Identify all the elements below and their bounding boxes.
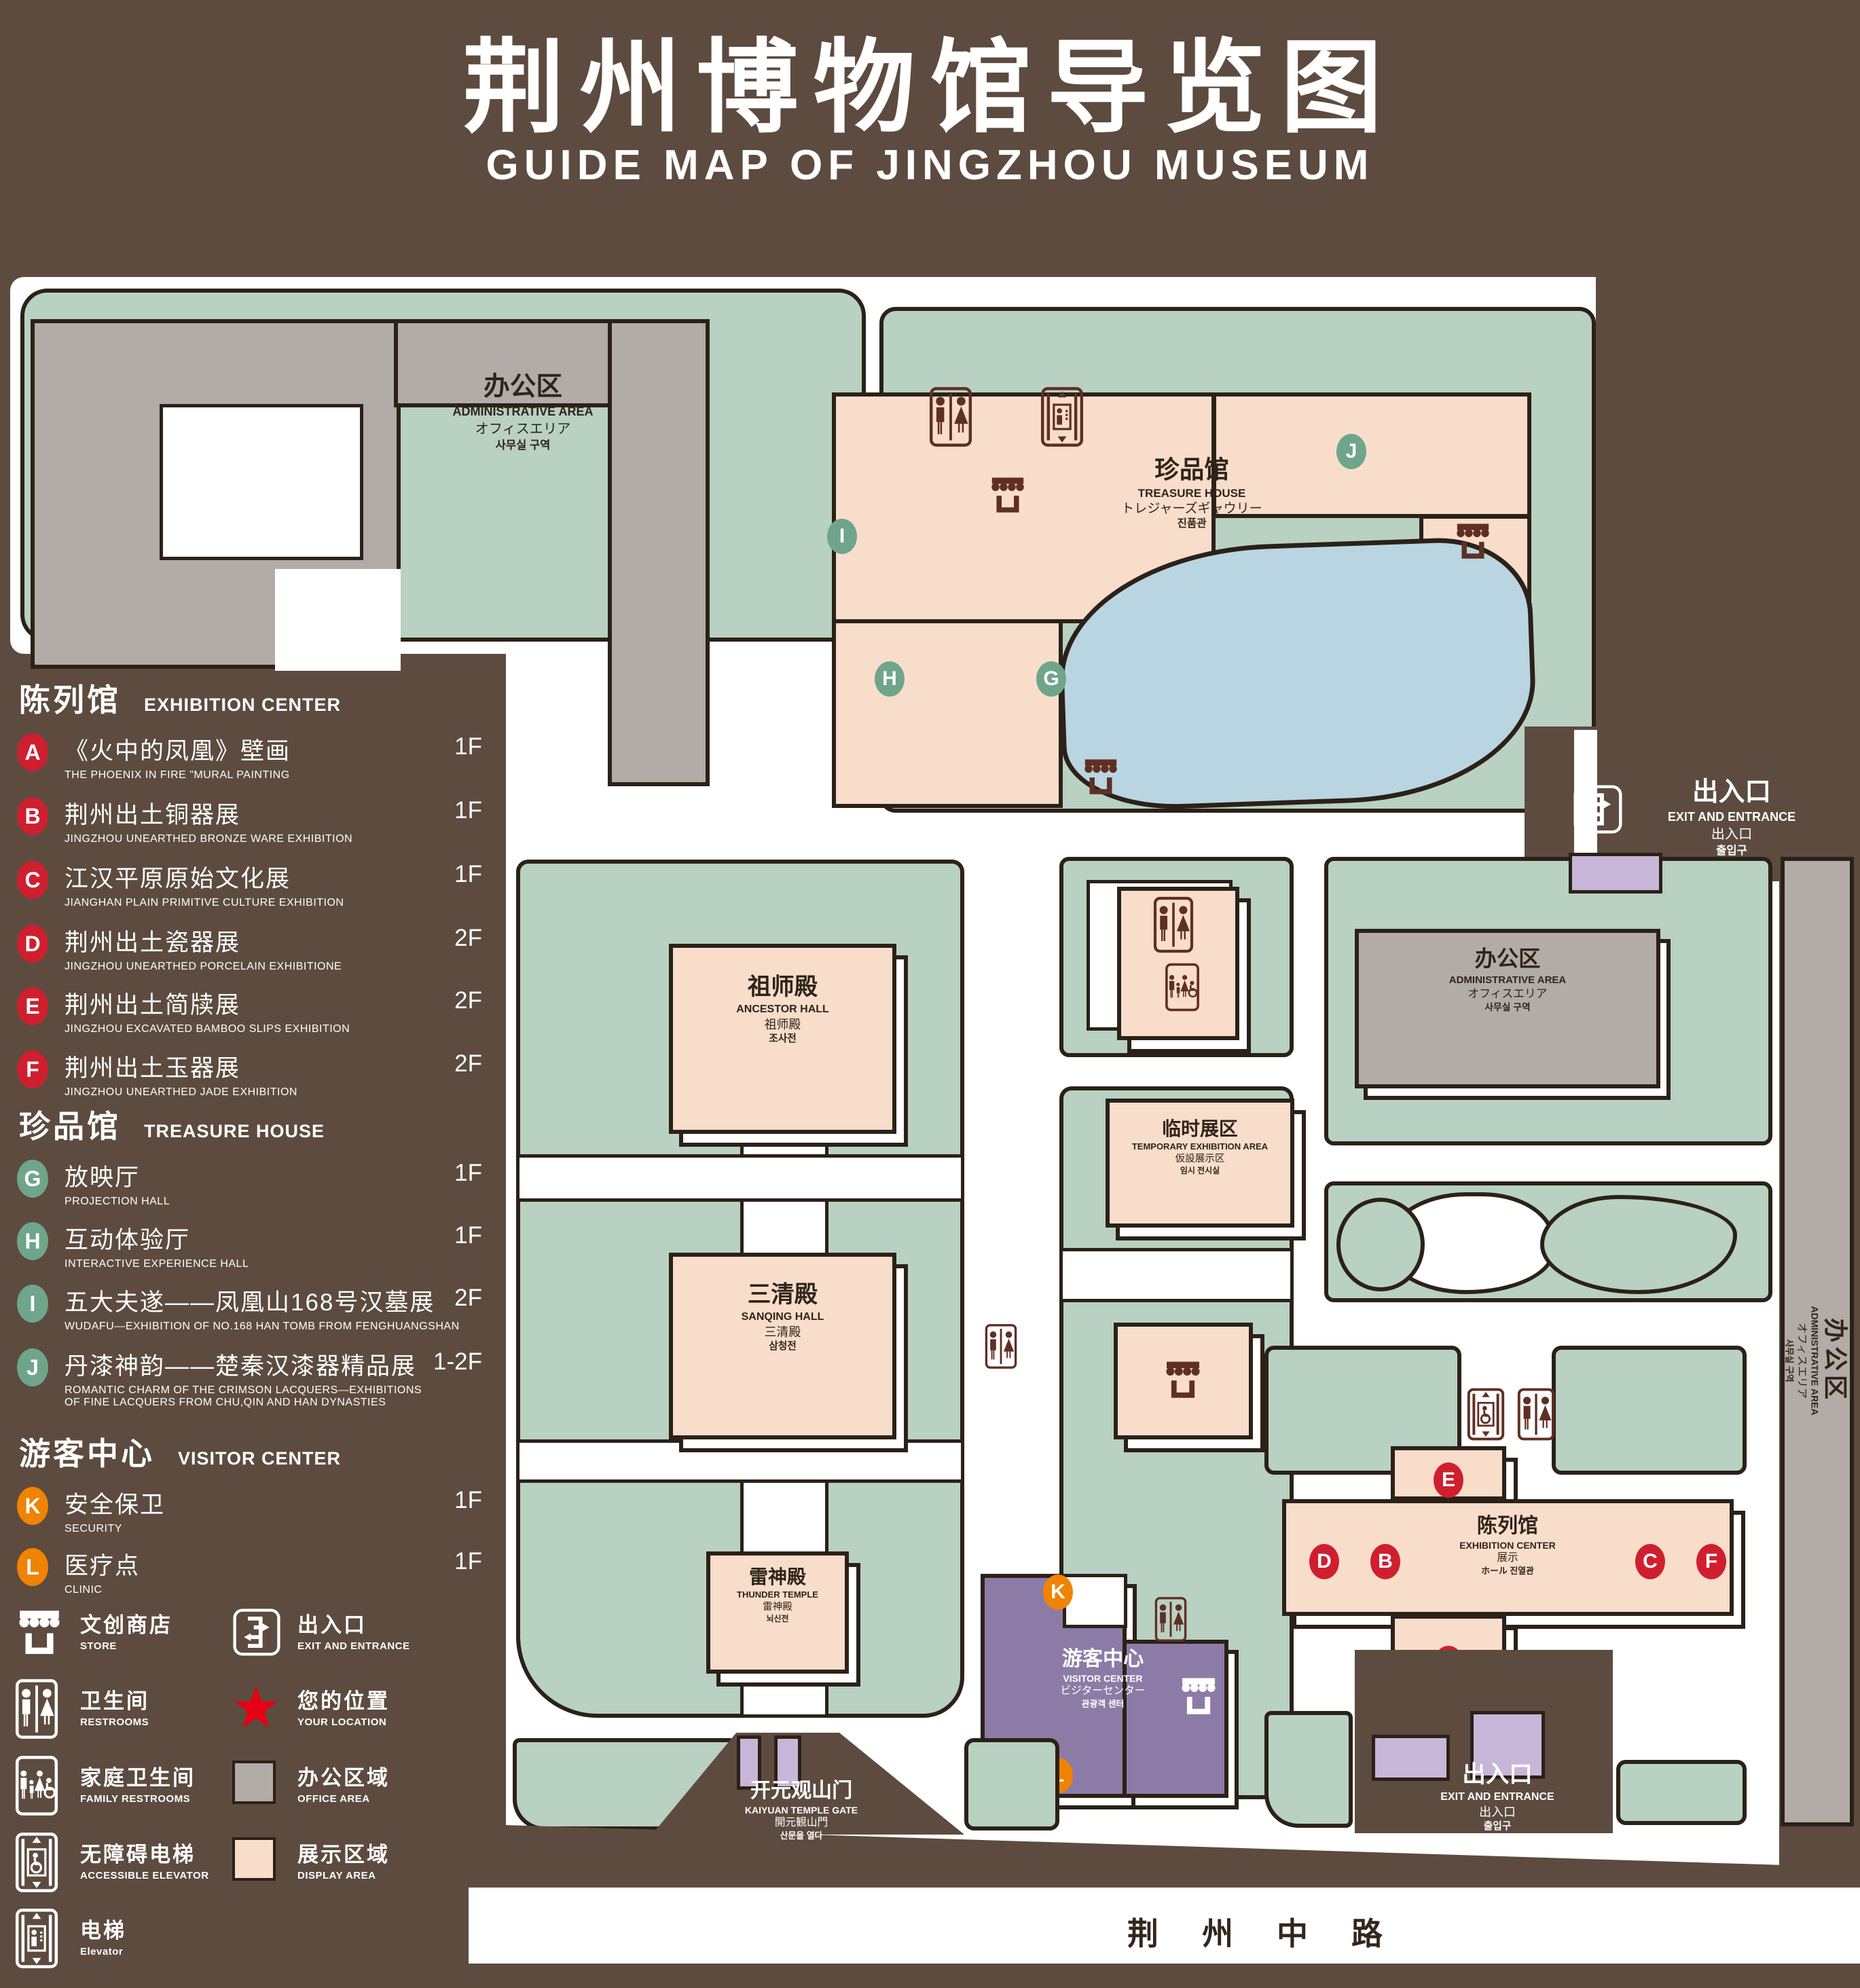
marker-J: J bbox=[1336, 434, 1366, 469]
path-central-h1 bbox=[516, 1154, 964, 1202]
store-icon bbox=[1453, 521, 1493, 561]
path-temporary bbox=[1059, 1248, 1294, 1302]
legend-item-D: D 荆州出土瓷器展 2F JINGZHOU UNEARTHED PORCELAI… bbox=[17, 923, 482, 973]
badge-J: J bbox=[17, 1348, 48, 1386]
store-icon bbox=[988, 475, 1027, 515]
badge-B: B bbox=[17, 797, 48, 835]
legend-item-F: F 荆州出土玉器展 2F JINGZHOU UNEARTHED JADE EXH… bbox=[17, 1049, 482, 1099]
thunder-temple-label: 雷神殿 THUNDER TEMPLE 雷神殿 뇌신전 bbox=[706, 1565, 849, 1625]
restroom-icon bbox=[15, 1678, 58, 1739]
legend-section-treasure-house: 珍品馆TREASURE HOUSE bbox=[19, 1102, 325, 1147]
marker-C: C bbox=[1635, 1544, 1665, 1579]
accessible-elevator-icon bbox=[1467, 1386, 1505, 1442]
visitor-center-notch bbox=[1063, 1574, 1127, 1628]
legend-item-K: K 安全保卫 1F SECURITY bbox=[17, 1486, 482, 1535]
legend-item-B: B 荆州出土铜器展 1F JINGZHOU UNEARTHED BRONZE W… bbox=[17, 796, 482, 845]
legend-symbol-store: 文创商店STORE bbox=[15, 1608, 219, 1652]
garden-island-west bbox=[1336, 1198, 1425, 1291]
store-icon bbox=[1178, 1676, 1219, 1716]
road-label: 荆州中路 bbox=[1127, 1909, 1426, 1954]
restroom-icon bbox=[985, 1323, 1017, 1370]
store-icon bbox=[15, 1608, 64, 1657]
elevator-icon bbox=[1040, 386, 1084, 448]
badge-F: F bbox=[17, 1050, 48, 1088]
family-restroom-icon bbox=[1165, 963, 1200, 1012]
legend-symbol-your-location: 您的位置YOUR LOCATION bbox=[232, 1684, 450, 1728]
path-central-h2 bbox=[516, 1439, 964, 1483]
legend-item-E: E 荆州出土简牍展 2F JINGZHOU EXCAVATED BAMBOO S… bbox=[17, 986, 482, 1035]
display-area-swatch bbox=[232, 1837, 276, 1881]
ancestor-hall-label: 祖师殿 ANCESTOR HALL 祖师殿 조사전 bbox=[669, 972, 896, 1046]
zone-gate-east-green bbox=[964, 1738, 1059, 1830]
store-icon bbox=[1163, 1359, 1203, 1400]
treasure-house-tower bbox=[832, 619, 1063, 808]
exit-icon bbox=[1573, 781, 1623, 838]
badge-C: C bbox=[17, 861, 48, 899]
marker-E: E bbox=[1434, 1462, 1463, 1498]
temporary-exhibition-label: 临时展区 TEMPORARY EXHIBITION AREA 仮設展示区 임시 … bbox=[1106, 1117, 1294, 1177]
restroom-icon bbox=[1154, 1596, 1187, 1643]
marker-H: H bbox=[875, 661, 905, 697]
legend-item-I: I 五大夫遂——凤凰山168号汉墓展 2F WUDAFU—EXHIBITION … bbox=[17, 1283, 482, 1333]
legend-item-J: J 丹漆神韵——楚秦汉漆器精品展 1-2F ROMANTIC CHARM OF … bbox=[17, 1347, 482, 1409]
legend-symbol-elevator: 电梯Elevator bbox=[15, 1913, 219, 1957]
marker-I: I bbox=[827, 519, 857, 554]
marker-B: B bbox=[1370, 1544, 1400, 1579]
exit-icon bbox=[232, 1608, 281, 1657]
accessible-elevator-icon bbox=[15, 1832, 58, 1893]
legend-item-H: H 互动体验厅 1F INTERACTIVE EXPERIENCE HALL bbox=[17, 1221, 482, 1270]
office-area-swatch bbox=[232, 1761, 276, 1804]
legend-section-exhibition-center: 陈列馆EXHIBITION CENTER bbox=[19, 676, 341, 720]
family-restroom-icon bbox=[15, 1755, 58, 1816]
legend-symbol-office-area: 办公区域OFFICE AREA bbox=[232, 1761, 450, 1805]
restroom-icon bbox=[1517, 1386, 1555, 1442]
admin-courtyard-south bbox=[275, 569, 401, 671]
zone-exhibition-se-green bbox=[1616, 1760, 1747, 1825]
zone-exhibition-sw-green bbox=[1264, 1711, 1353, 1828]
badge-H: H bbox=[17, 1222, 48, 1260]
legend-section-visitor-center: 游客中心VISITOR CENTER bbox=[19, 1429, 341, 1474]
marker-G: G bbox=[1036, 661, 1066, 697]
marker-D: D bbox=[1309, 1544, 1339, 1579]
zone-exhibition-east-green bbox=[1552, 1346, 1747, 1475]
admin-strip-building: 办公区 ADMINISTRATIVE AREA オフィスエリア 사무실 구역 bbox=[1781, 857, 1854, 1826]
admin-northwest-label: 办公区 ADMINISTRATIVE AREA オフィスエリア 사무실 구역 bbox=[380, 370, 665, 452]
legend-item-C: C 江汉平原原始文化展 1F JIANGHAN PLAIN PRIMITIVE … bbox=[17, 860, 482, 909]
page-title: 荆州博物馆导览图 bbox=[0, 5, 1860, 153]
sanqing-hall-label: 三清殿 SANQING HALL 三清殿 삼청전 bbox=[669, 1280, 896, 1353]
legend-item-A: A 《火中的凤凰》壁画 1F THE PHOENIX IN FIRE "MURA… bbox=[17, 732, 482, 781]
store-icon bbox=[1081, 757, 1120, 796]
legend-item-L: L 医疗点 1F CLINIC bbox=[17, 1547, 482, 1596]
restroom-icon bbox=[1153, 896, 1194, 953]
legend-symbol-restroom: 卫生间RESTROOMS bbox=[15, 1684, 219, 1728]
badge-G: G bbox=[17, 1160, 48, 1198]
badge-L: L bbox=[17, 1548, 48, 1586]
badge-K: K bbox=[17, 1487, 48, 1525]
legend-symbol-family-restroom: 家庭卫生间FAMILY RESTROOMS bbox=[15, 1761, 219, 1805]
marker-K: K bbox=[1043, 1575, 1073, 1610]
badge-A: A bbox=[17, 733, 48, 771]
admin-strip-label: 办公区 ADMINISTRATIVE AREA オフィスエリア 사무실 구역 bbox=[1784, 1306, 1851, 1416]
restroom-icon bbox=[929, 386, 972, 448]
treasure-house-label: 珍品馆 TREASURE HOUSE トレジャーズギャウリー 진품관 bbox=[1056, 454, 1328, 532]
kaiyuan-gate-label: 开元观山门 KAIYUAN TEMPLE GATE 開元観山門 산문을 열다 bbox=[652, 1778, 951, 1841]
page-subtitle: GUIDE MAP OF JINGZHOU MUSEUM bbox=[0, 141, 1860, 189]
south-exit-label: 出入口 EXIT AND ENTRANCE 出入口 출입구 bbox=[1379, 1760, 1616, 1833]
badge-D: D bbox=[17, 925, 48, 963]
north-gate-building bbox=[1569, 853, 1662, 894]
location-star-icon bbox=[232, 1684, 280, 1731]
legend-symbol-exit: 出入口EXIT AND ENTRANCE bbox=[232, 1608, 450, 1652]
elevator-icon bbox=[15, 1908, 58, 1969]
east-exit-label: 出入口 EXIT AND ENTRANCE 出入口 출입구 bbox=[1630, 775, 1834, 858]
badge-E: E bbox=[17, 987, 48, 1025]
admin-east-label: 办公区 ADMINISTRATIVE AREA オフィスエリア 사무실 구역 bbox=[1372, 945, 1643, 1014]
admin-courtyard bbox=[160, 404, 363, 560]
legend-symbol-display-area: 展示区域DISPLAY AREA bbox=[232, 1837, 450, 1881]
legend-item-G: G 放映厅 1F PROJECTION HALL bbox=[17, 1158, 482, 1208]
badge-I: I bbox=[17, 1285, 48, 1323]
legend-symbol-accessible-elevator: 无障碍电梯ACCESSIBLE ELEVATOR bbox=[15, 1837, 219, 1881]
marker-F: F bbox=[1696, 1544, 1726, 1579]
